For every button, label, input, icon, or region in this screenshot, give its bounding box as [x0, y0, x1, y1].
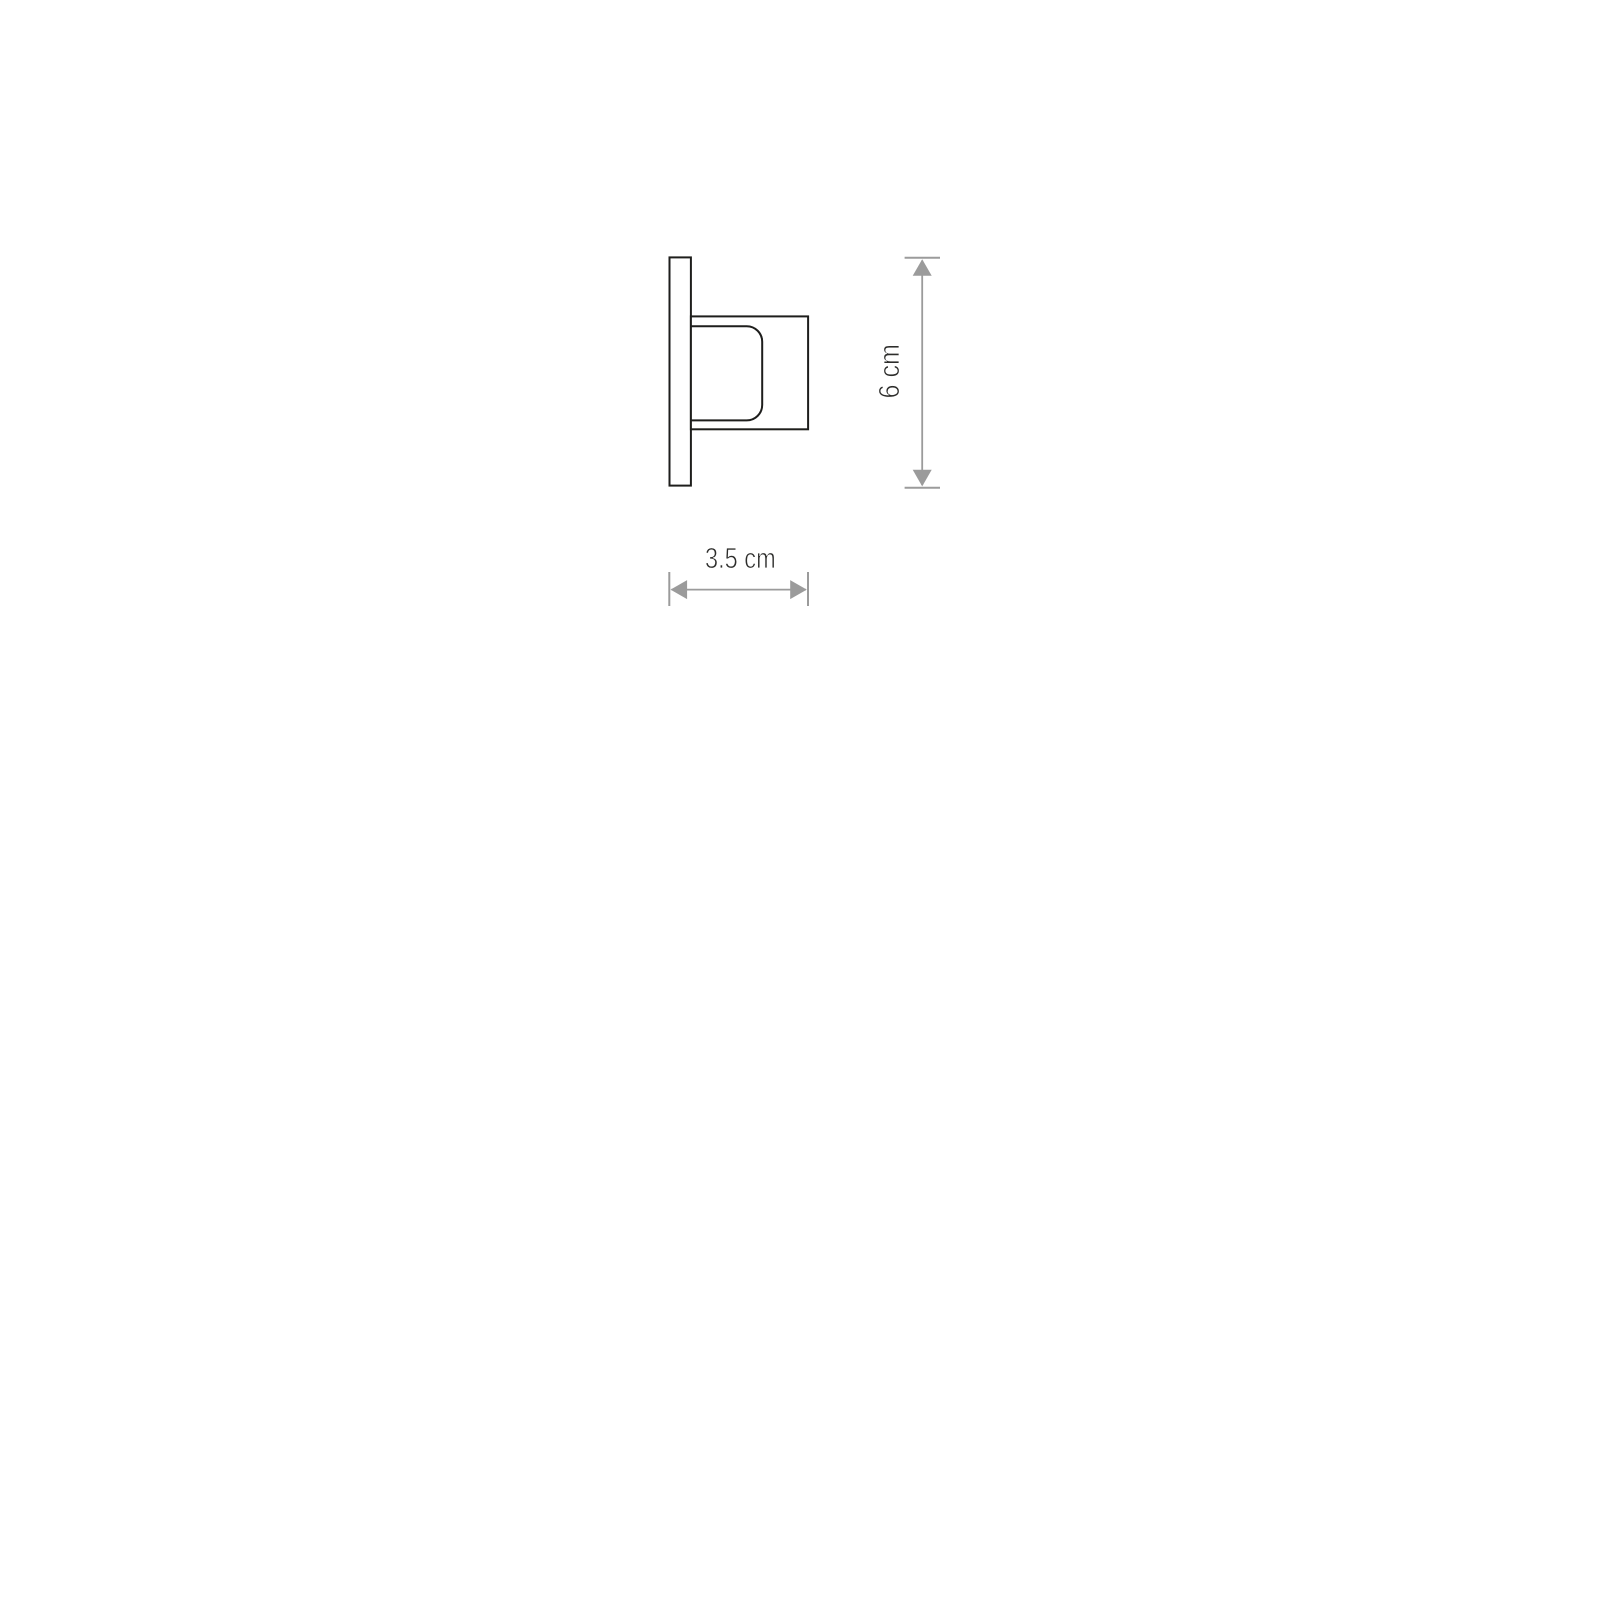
svg-text:6 cm: 6 cm: [874, 344, 906, 399]
svg-text:3.5 cm: 3.5 cm: [705, 543, 776, 575]
